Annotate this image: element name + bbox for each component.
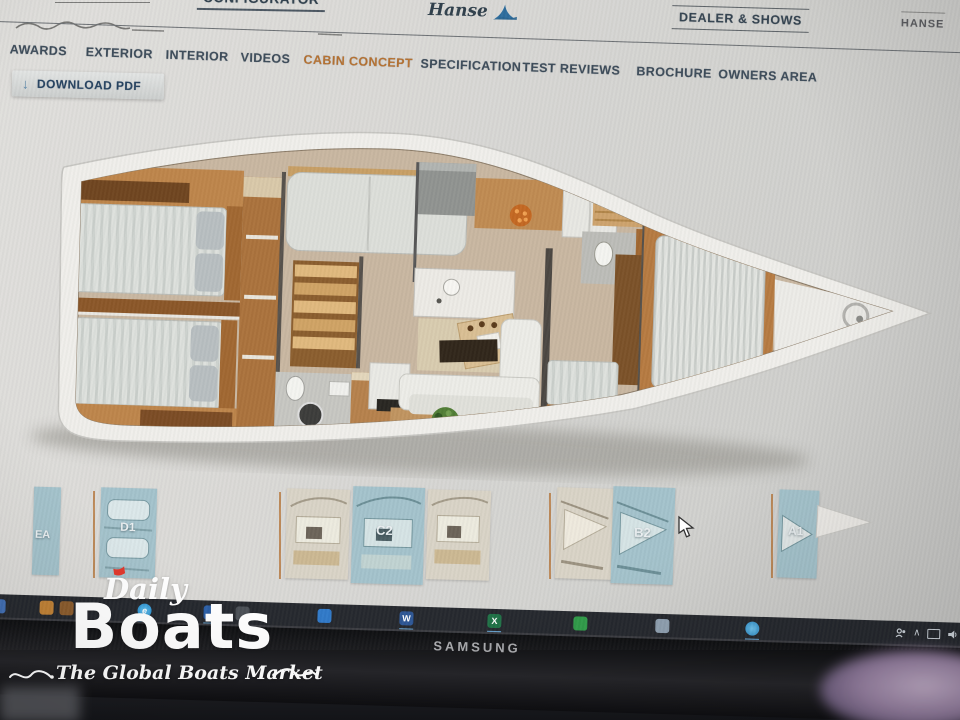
tab-dealer-shows[interactable]: DEALER & SHOWS	[672, 5, 810, 33]
thumbnail-layout-ea[interactable]: EA	[32, 487, 61, 576]
tab-configurator[interactable]: CONFIGURATOR	[197, 0, 326, 12]
thumbnail-layout-b1[interactable]	[555, 487, 615, 580]
cabin-layout-floorplan	[0, 105, 960, 495]
thumbnail-separator	[771, 494, 773, 578]
taskbar-app-icon[interactable]	[655, 619, 669, 633]
hanse-logo-text: Hanse	[428, 0, 488, 21]
account-menu-hanse[interactable]: HANSE	[901, 11, 945, 30]
tab-test-reviews[interactable]: TEST REVIEWS	[522, 60, 620, 77]
excel-icon[interactable]: X	[487, 614, 501, 628]
tab-awards[interactable]: AWARDS	[10, 42, 68, 58]
people-icon[interactable]	[895, 627, 906, 637]
thumbnail-layout-b2[interactable]: B2	[611, 486, 676, 585]
floorplan-image	[0, 105, 960, 495]
thumbnail-layout-c1[interactable]	[285, 488, 350, 580]
flourish-right-icon	[272, 664, 318, 682]
browser-icon[interactable]	[745, 621, 759, 635]
blurred-scribble	[12, 12, 352, 38]
download-icon: ↓	[22, 76, 29, 92]
flourish-left-icon	[8, 666, 54, 684]
room-object-blur	[0, 686, 80, 720]
watermark-boats: Boats	[70, 590, 273, 663]
thumbnail-label: EA	[35, 529, 51, 541]
download-label: DOWNLOAD PDF	[37, 77, 141, 93]
thumbnail-label: A1	[788, 524, 804, 539]
watermark-flag-icon	[112, 566, 128, 580]
tab-specification[interactable]: SPECIFICATION	[420, 57, 521, 75]
download-pdf-button[interactable]: ↓ DOWNLOAD PDF	[12, 70, 165, 99]
thumbnail-layout-a1[interactable]: A1	[776, 489, 819, 578]
thumbnail-label: B2	[634, 525, 651, 540]
thumbnail-label: C2	[376, 523, 393, 538]
system-tray: ∧	[895, 627, 958, 640]
thumbnail-graphic	[426, 489, 491, 581]
speaker-icon[interactable]	[947, 629, 957, 639]
tab-owners-area[interactable]: OWNERS AREA	[718, 67, 818, 84]
thumbnail-separator	[549, 493, 551, 579]
thumbnail-bow-tip	[814, 501, 876, 544]
hanse-sail-icon	[492, 1, 518, 22]
thumbnail-separator	[93, 491, 95, 578]
thumbnail-layout-d1[interactable]: D1	[99, 487, 157, 578]
excel-glyph: X	[491, 616, 497, 626]
thumbnail-layout-c2[interactable]: C2	[351, 486, 426, 585]
hanse-logo[interactable]: Hanse	[428, 0, 518, 22]
store-icon[interactable]	[39, 600, 53, 614]
thumbnail-separator	[279, 492, 281, 579]
tab-interior[interactable]: INTERIOR	[165, 48, 228, 64]
tab-videos[interactable]: VIDEOS	[240, 50, 290, 66]
word-glyph: W	[402, 613, 411, 623]
screen-top-edge-line	[55, 2, 150, 3]
thumbnail-graphic	[285, 488, 350, 580]
monitor-brand: SAMSUNG	[433, 638, 521, 656]
word-icon[interactable]: W	[399, 611, 413, 625]
taskbar-app-icon[interactable]	[0, 599, 6, 613]
mouse-cursor	[676, 515, 698, 541]
tab-exterior[interactable]: EXTERIOR	[85, 45, 153, 61]
thumbnail-label: D1	[120, 520, 136, 534]
monitor-photo: CONFIGURATOR Hanse DEALER & SHOWS HANSE …	[0, 0, 960, 720]
thumbnail-graphic	[555, 487, 615, 580]
taskbar-app-icon[interactable]	[317, 609, 331, 623]
display-icon[interactable]	[927, 628, 940, 638]
tab-cabin-concept[interactable]: CABIN CONCEPT	[303, 53, 413, 71]
tab-brochure[interactable]: BROCHURE	[636, 64, 712, 81]
taskbar-app-icon[interactable]	[573, 616, 587, 630]
tray-chevron-icon[interactable]: ∧	[913, 627, 921, 638]
thumbnail-layout-c3[interactable]	[426, 489, 491, 581]
